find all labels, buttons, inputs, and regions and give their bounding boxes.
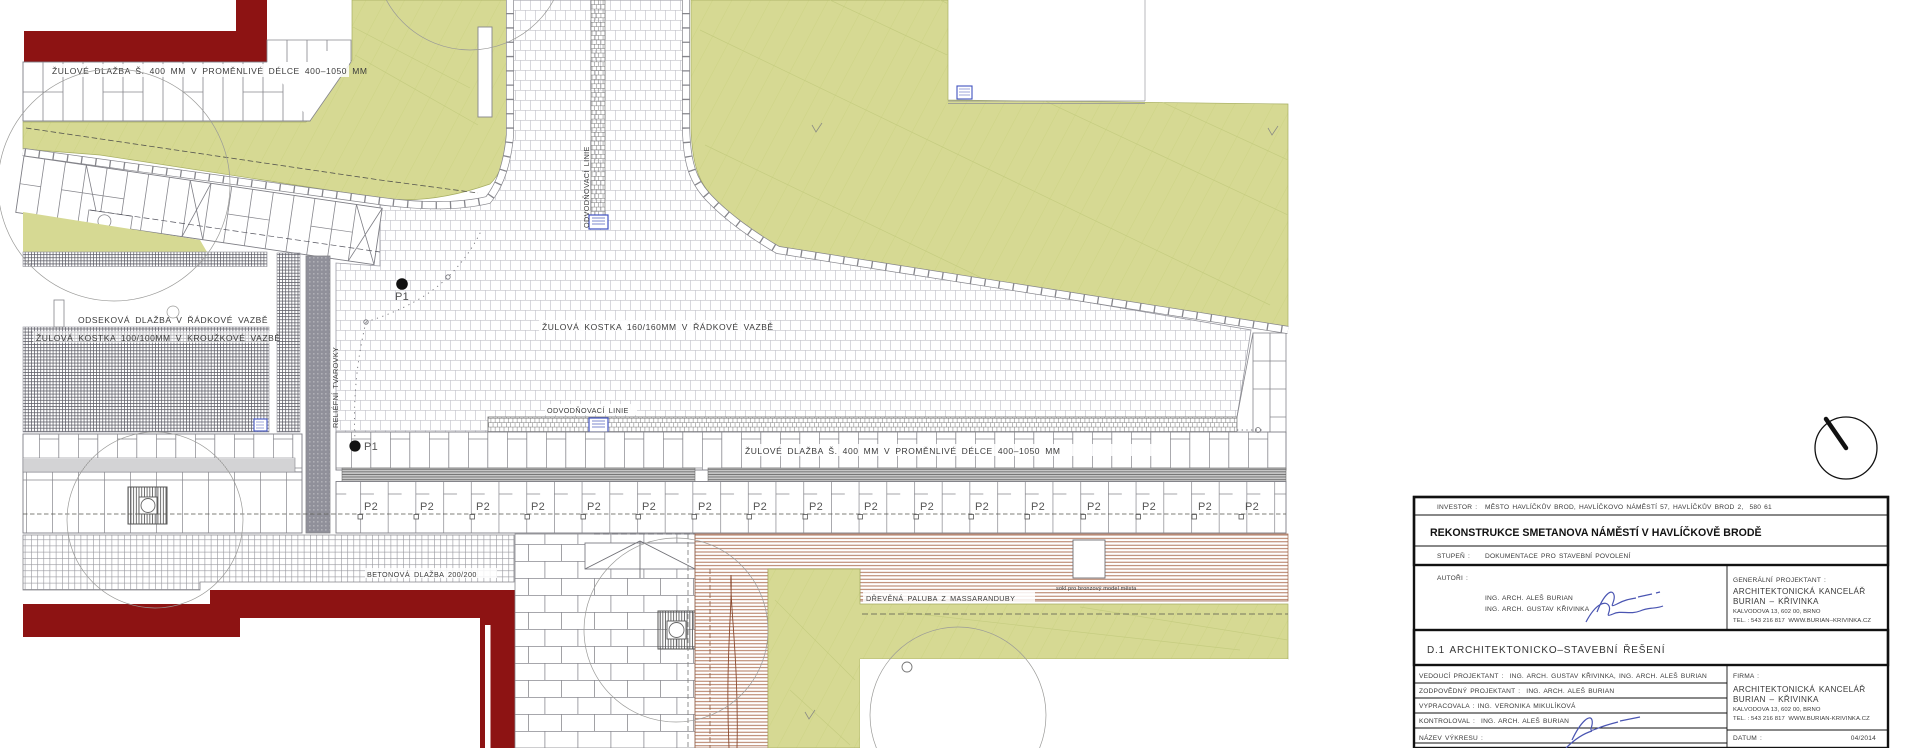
svg-text:GENERÁLNÍ PROJEKTANT :: GENERÁLNÍ PROJEKTANT : xyxy=(1733,575,1826,584)
svg-text:P2: P2 xyxy=(1142,501,1156,513)
svg-text:ING. ARCH. ALEŠ BURIAN: ING. ARCH. ALEŠ BURIAN xyxy=(1485,593,1573,602)
svg-text:DOKUMENTACE PRO STAVEBNÍ POVOL: DOKUMENTACE PRO STAVEBNÍ POVOLENÍ xyxy=(1485,551,1631,560)
svg-text:FIRMA :: FIRMA : xyxy=(1733,673,1759,680)
svg-text:P2: P2 xyxy=(1245,501,1259,513)
svg-text:KONTROLOVAL : ING. ARCH. ALEŠ: KONTROLOVAL : ING. ARCH. ALEŠ BURIAN xyxy=(1419,716,1569,725)
svg-text:ŽULOVÁ KOSTKA 160/160MM V ŘÁDK: ŽULOVÁ KOSTKA 160/160MM V ŘÁDKOVÉ VAZBĚ xyxy=(542,322,774,332)
svg-text:P1: P1 xyxy=(364,441,378,453)
svg-text:P2: P2 xyxy=(864,501,878,513)
svg-text:P2: P2 xyxy=(587,501,601,513)
svg-text:ŽULOVÉ DLAŽBA Š. 400 MM V PROM: ŽULOVÉ DLAŽBA Š. 400 MM V PROMĚNLIVÉ DÉL… xyxy=(52,66,367,76)
svg-text:D.1 ARCHITEKTONICKO–STAVEBNÍ Ř: D.1 ARCHITEKTONICKO–STAVEBNÍ ŘEŠENÍ xyxy=(1427,643,1665,656)
svg-text:P2: P2 xyxy=(809,501,823,513)
svg-text:AUTOŘI :: AUTOŘI : xyxy=(1437,573,1468,582)
svg-text:VYPRACOVALA : ING. VERONIKA MI: VYPRACOVALA : ING. VERONIKA MIKULÍKOVÁ xyxy=(1419,701,1576,710)
svg-text:REKONSTRUKCE SMETANOVA NÁMĚSTÍ: REKONSTRUKCE SMETANOVA NÁMĚSTÍ V HAVLÍČK… xyxy=(1430,526,1762,539)
svg-text:VEDOUCÍ PROJEKTANT : ING. ARC: VEDOUCÍ PROJEKTANT : ING. ARCH. GUSTAV K… xyxy=(1419,671,1707,680)
svg-text:P2: P2 xyxy=(364,501,378,513)
svg-text:ING. ARCH. GUSTAV KŘIVINKA: ING. ARCH. GUSTAV KŘIVINKA xyxy=(1485,604,1590,613)
svg-text:TEL. : 543 216 817 WWW.BURIAN: TEL. : 543 216 817 WWW.BURIAN–KRIVINKA.C… xyxy=(1733,618,1871,624)
svg-text:ODVODŇOVACÍ LINIE: ODVODŇOVACÍ LINIE xyxy=(547,406,629,415)
svg-text:ODSEKOVÁ DLAŽBA V ŘÁDKOVÉ VAZB: ODSEKOVÁ DLAŽBA V ŘÁDKOVÉ VAZBĚ xyxy=(78,315,268,325)
svg-text:DŘEVĚNÁ PALUBA Z MASSARANDUBY: DŘEVĚNÁ PALUBA Z MASSARANDUBY xyxy=(866,594,1015,603)
svg-text:ODVODŇOVACÍ LINIE: ODVODŇOVACÍ LINIE xyxy=(582,146,591,228)
svg-text:STUPEŇ :: STUPEŇ : xyxy=(1437,551,1470,560)
svg-text:BETONOVÁ DLAŽBA 200/200: BETONOVÁ DLAŽBA 200/200 xyxy=(367,570,477,579)
svg-text:P2: P2 xyxy=(1198,501,1212,513)
svg-text:BURIAN – KŘIVINKA: BURIAN – KŘIVINKA xyxy=(1733,596,1819,606)
svg-text:KALVODOVA 13, 602 00, BRNO: KALVODOVA 13, 602 00, BRNO xyxy=(1733,707,1821,713)
svg-text:ARCHITEKTONICKÁ KANCELÁŘ: ARCHITEKTONICKÁ KANCELÁŘ xyxy=(1733,684,1865,694)
svg-text:DATUM :: DATUM : xyxy=(1733,735,1762,742)
svg-text:P2: P2 xyxy=(920,501,934,513)
svg-text:P2: P2 xyxy=(476,501,490,513)
svg-text:ŽULOVÁ KOSTKA 100/100MM V KROU: ŽULOVÁ KOSTKA 100/100MM V KROUŽKOVÉ VAZB… xyxy=(36,333,281,343)
svg-text:P1: P1 xyxy=(395,291,409,303)
svg-text:NÁZEV VÝKRESU :: NÁZEV VÝKRESU : xyxy=(1419,733,1483,742)
svg-text:sokl pro bronzový model města: sokl pro bronzový model města xyxy=(1056,586,1137,592)
svg-text:KALVODOVA 13, 602 00, BRNO: KALVODOVA 13, 602 00, BRNO xyxy=(1733,609,1821,615)
svg-text:TEL. : 543 216 817 WWW.BURIAN: TEL. : 543 216 817 WWW.BURIAN-KRIVINKA.C… xyxy=(1733,716,1870,722)
svg-text:04/2014: 04/2014 xyxy=(1851,735,1876,742)
svg-text:BURIAN – KŘIVINKA: BURIAN – KŘIVINKA xyxy=(1733,694,1819,704)
svg-text:RELIÉFNÍ TVAROVKY: RELIÉFNÍ TVAROVKY xyxy=(331,347,340,428)
svg-text:ZODPOVĚDNÝ PROJEKTANT : ING.: ZODPOVĚDNÝ PROJEKTANT : ING. ARCH. ALEŠ … xyxy=(1419,686,1614,695)
svg-text:INVESTOR :: INVESTOR : xyxy=(1437,504,1477,511)
svg-text:P2: P2 xyxy=(1087,501,1101,513)
svg-text:MĚSTO HAVLÍČKŮV BROD, HAVLÍČKO: MĚSTO HAVLÍČKŮV BROD, HAVLÍČKOVO NÁMĚSTÍ… xyxy=(1485,502,1772,511)
svg-text:P2: P2 xyxy=(420,501,434,513)
svg-text:P2: P2 xyxy=(753,501,767,513)
svg-text:P2: P2 xyxy=(642,501,656,513)
svg-text:P2: P2 xyxy=(975,501,989,513)
svg-text:ARCHITEKTONICKÁ KANCELÁŘ: ARCHITEKTONICKÁ KANCELÁŘ xyxy=(1733,586,1865,596)
svg-text:P2: P2 xyxy=(698,501,712,513)
svg-text:ŽULOVÉ DLAŽBA Š. 400 MM V PROM: ŽULOVÉ DLAŽBA Š. 400 MM V PROMĚNLIVÉ DÉL… xyxy=(745,446,1060,456)
svg-text:P2: P2 xyxy=(531,501,545,513)
svg-text:P2: P2 xyxy=(1031,501,1045,513)
